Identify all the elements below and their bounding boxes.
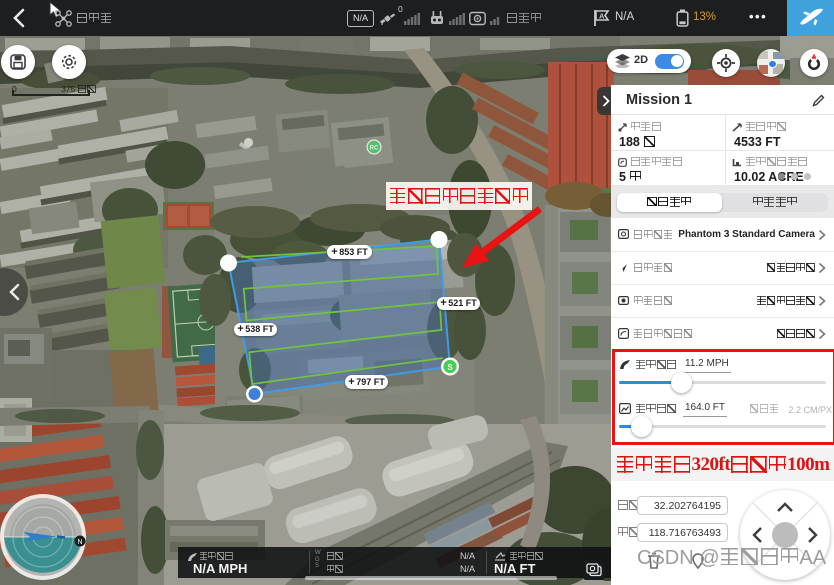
svg-text:N: N: [77, 539, 82, 546]
svg-text:S: S: [447, 363, 453, 372]
svg-text:A: A: [599, 12, 605, 21]
